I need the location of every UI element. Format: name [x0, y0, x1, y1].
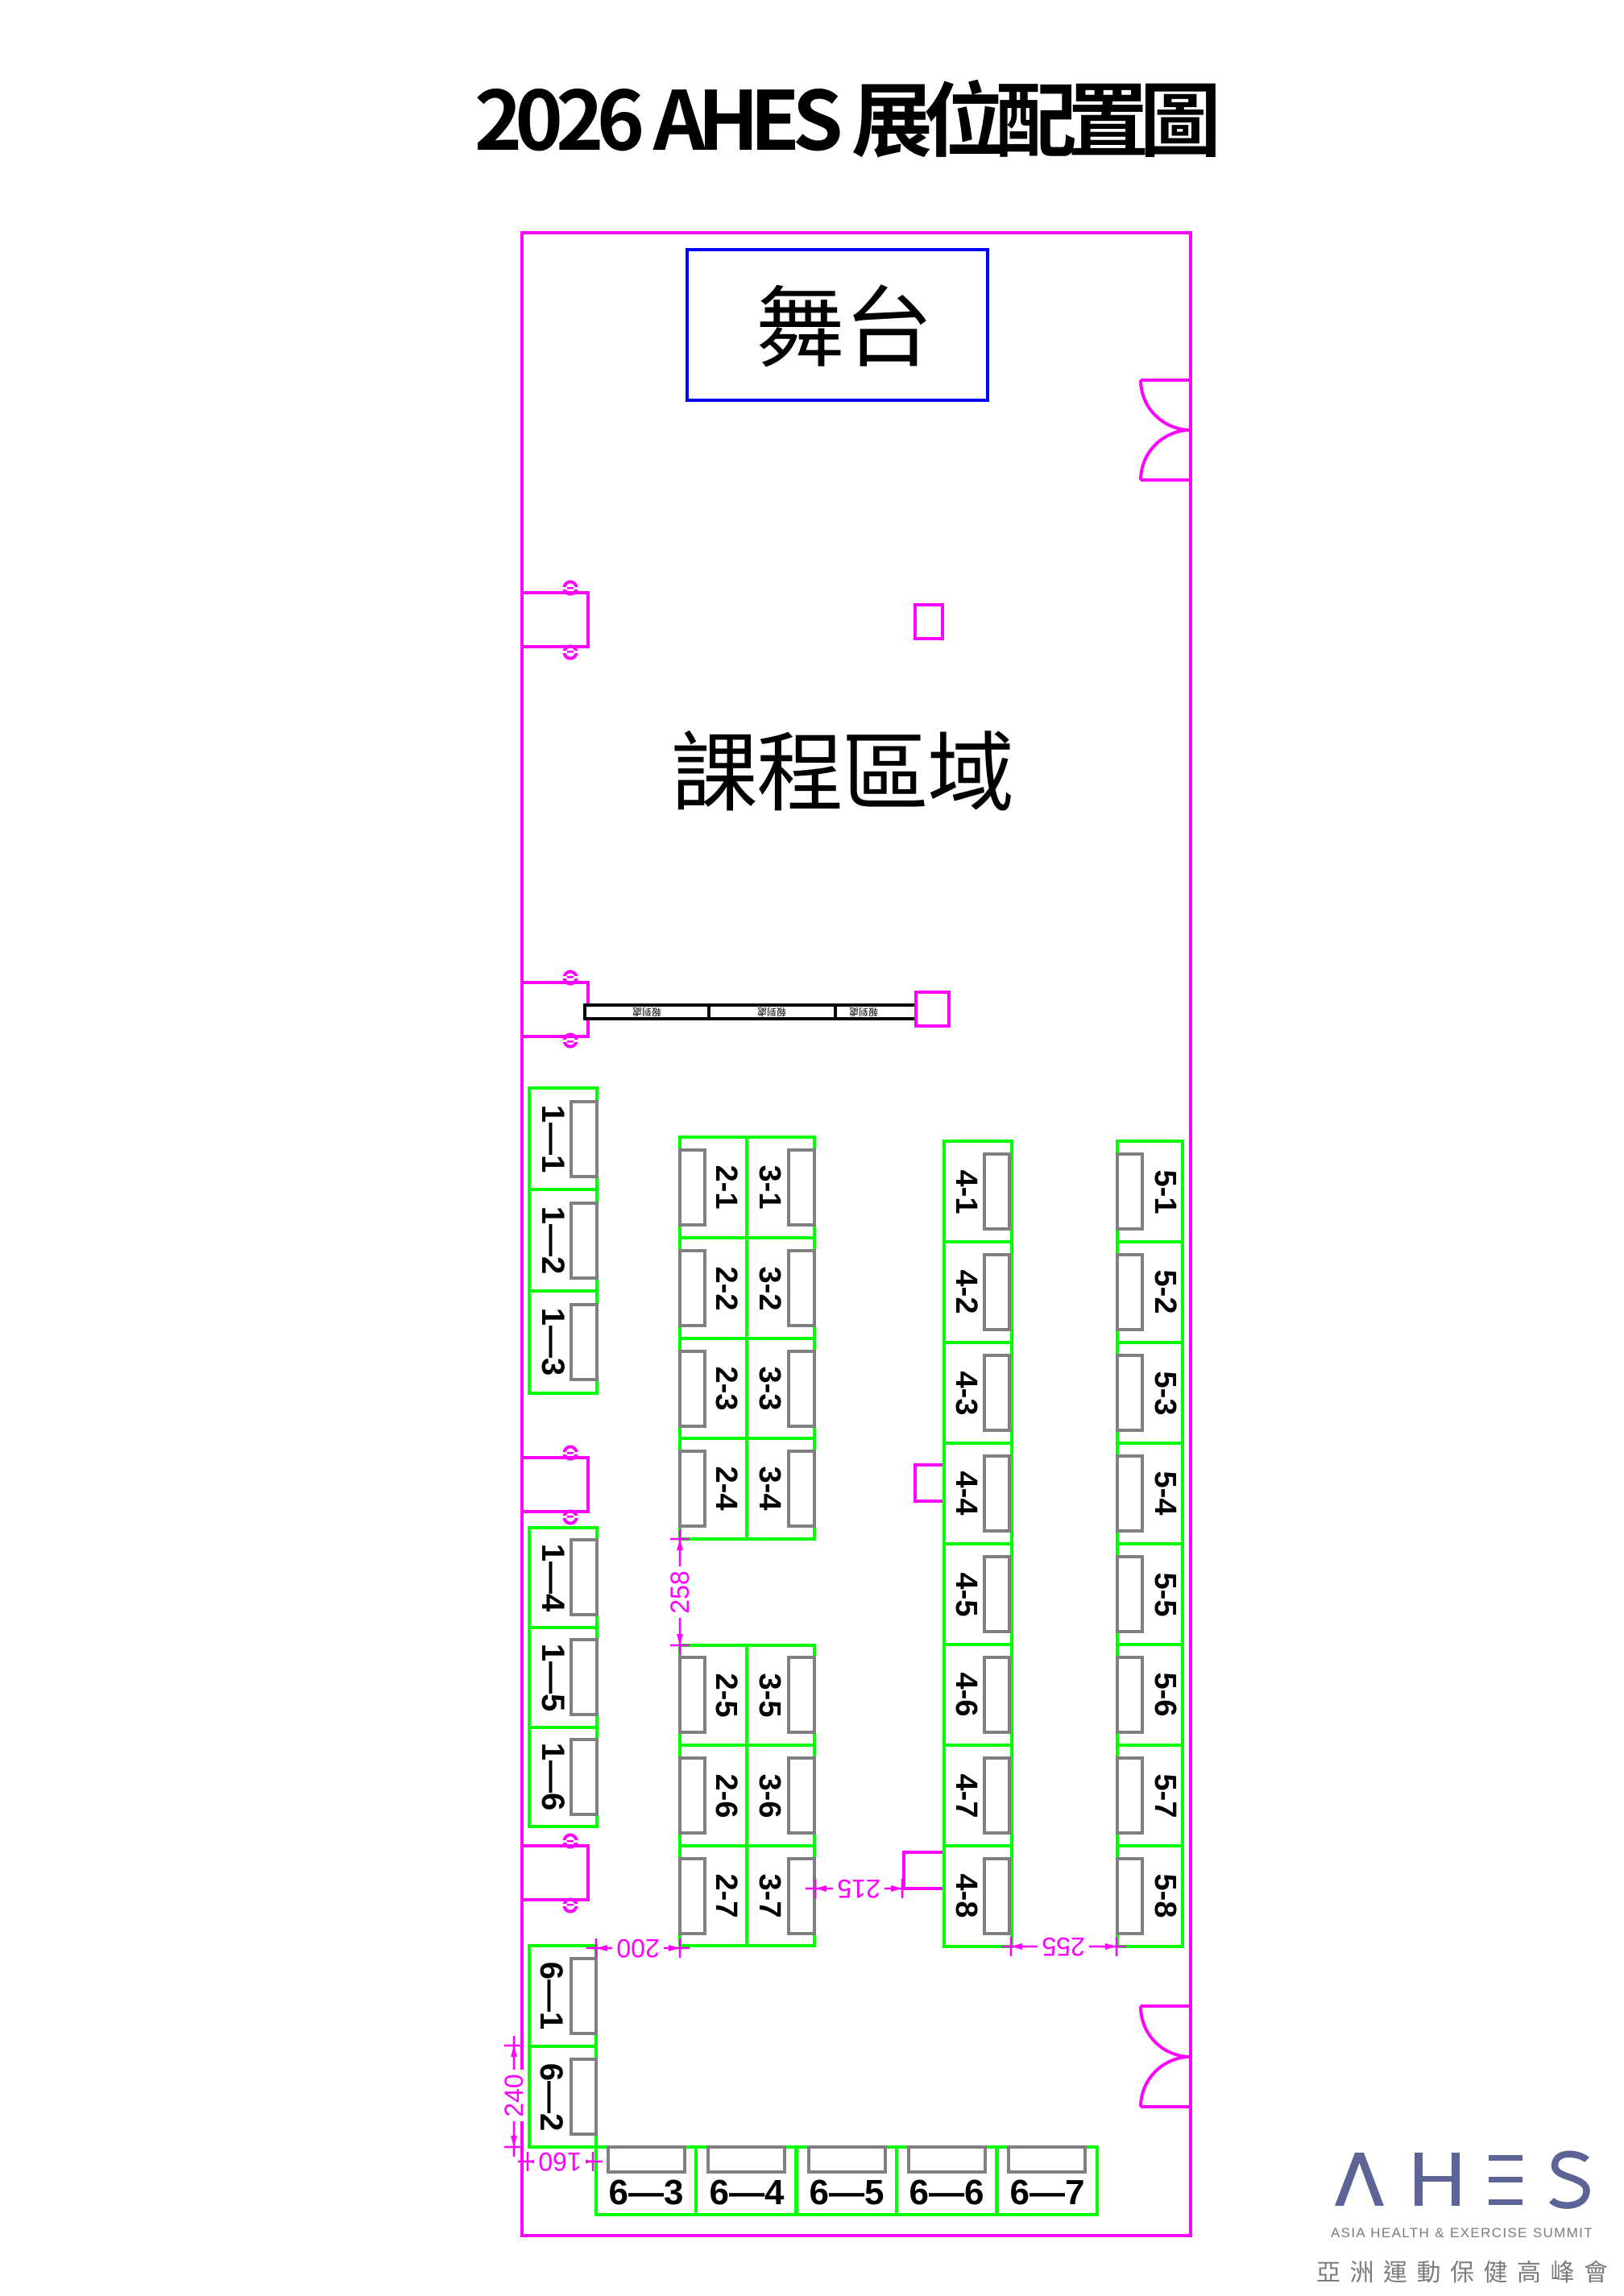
svg-text:1—1: 1—1	[535, 1105, 570, 1173]
svg-text:6—7: 6—7	[1010, 2173, 1085, 2212]
svg-text:1—5: 1—5	[535, 1644, 570, 1712]
svg-text:3-1: 3-1	[752, 1165, 786, 1210]
svg-text:3-4: 3-4	[752, 1467, 786, 1511]
svg-text:200: 200	[616, 1934, 659, 1963]
svg-text:3-6: 3-6	[752, 1774, 786, 1818]
svg-text:ASIA HEALTH & EXERCISE SUMMIT: ASIA HEALTH & EXERCISE SUMMIT	[1331, 2225, 1593, 2240]
svg-text:2-3: 2-3	[709, 1367, 743, 1411]
svg-text:3-5: 3-5	[752, 1673, 786, 1718]
svg-text:6—6: 6—6	[909, 2173, 984, 2212]
svg-text:6—1: 6—1	[533, 1962, 569, 2030]
svg-text:5-3: 5-3	[1148, 1371, 1182, 1416]
svg-text:5-2: 5-2	[1148, 1270, 1182, 1314]
svg-text:5-7: 5-7	[1148, 1774, 1182, 1818]
svg-text:6—2: 6—2	[533, 2063, 569, 2132]
svg-text:4-5: 4-5	[949, 1573, 983, 1617]
svg-text:1—2: 1—2	[535, 1206, 570, 1275]
svg-text:1—3: 1—3	[535, 1308, 570, 1376]
svg-text:4-6: 4-6	[949, 1673, 983, 1717]
svg-text:2-2: 2-2	[709, 1267, 743, 1311]
svg-text:3-3: 3-3	[752, 1367, 786, 1411]
svg-text:6—5: 6—5	[810, 2173, 884, 2212]
svg-text:2-4: 2-4	[709, 1467, 743, 1511]
svg-text:1—4: 1—4	[535, 1544, 570, 1612]
svg-text:258: 258	[665, 1570, 694, 1613]
svg-text:4-4: 4-4	[949, 1471, 983, 1516]
svg-text:1—6: 1—6	[535, 1743, 570, 1811]
svg-text:240: 240	[499, 2074, 528, 2116]
svg-text:4-8: 4-8	[949, 1874, 983, 1918]
svg-text:4-2: 4-2	[949, 1270, 983, 1314]
svg-text:5-1: 5-1	[1148, 1170, 1182, 1214]
svg-text:2-7: 2-7	[709, 1874, 743, 1918]
svg-text:2-1: 2-1	[709, 1165, 743, 1210]
svg-text:2-6: 2-6	[709, 1774, 743, 1818]
svg-text:6—4: 6—4	[710, 2173, 785, 2212]
svg-text:5-6: 5-6	[1148, 1673, 1182, 1717]
svg-text:3-2: 3-2	[752, 1267, 786, 1311]
svg-text:4-1: 4-1	[949, 1170, 983, 1214]
svg-text:255: 255	[1042, 1932, 1084, 1961]
svg-text:5-4: 5-4	[1148, 1471, 1182, 1516]
svg-text:5-8: 5-8	[1148, 1874, 1182, 1918]
svg-text:215: 215	[837, 1874, 880, 1903]
svg-text:2-5: 2-5	[709, 1673, 743, 1718]
svg-text:6—3: 6—3	[609, 2173, 684, 2212]
svg-text:160: 160	[538, 2147, 581, 2176]
svg-text:3-7: 3-7	[752, 1874, 786, 1918]
svg-text:4-3: 4-3	[949, 1371, 983, 1416]
svg-text:5-5: 5-5	[1148, 1573, 1182, 1617]
svg-text:4-7: 4-7	[949, 1774, 983, 1818]
